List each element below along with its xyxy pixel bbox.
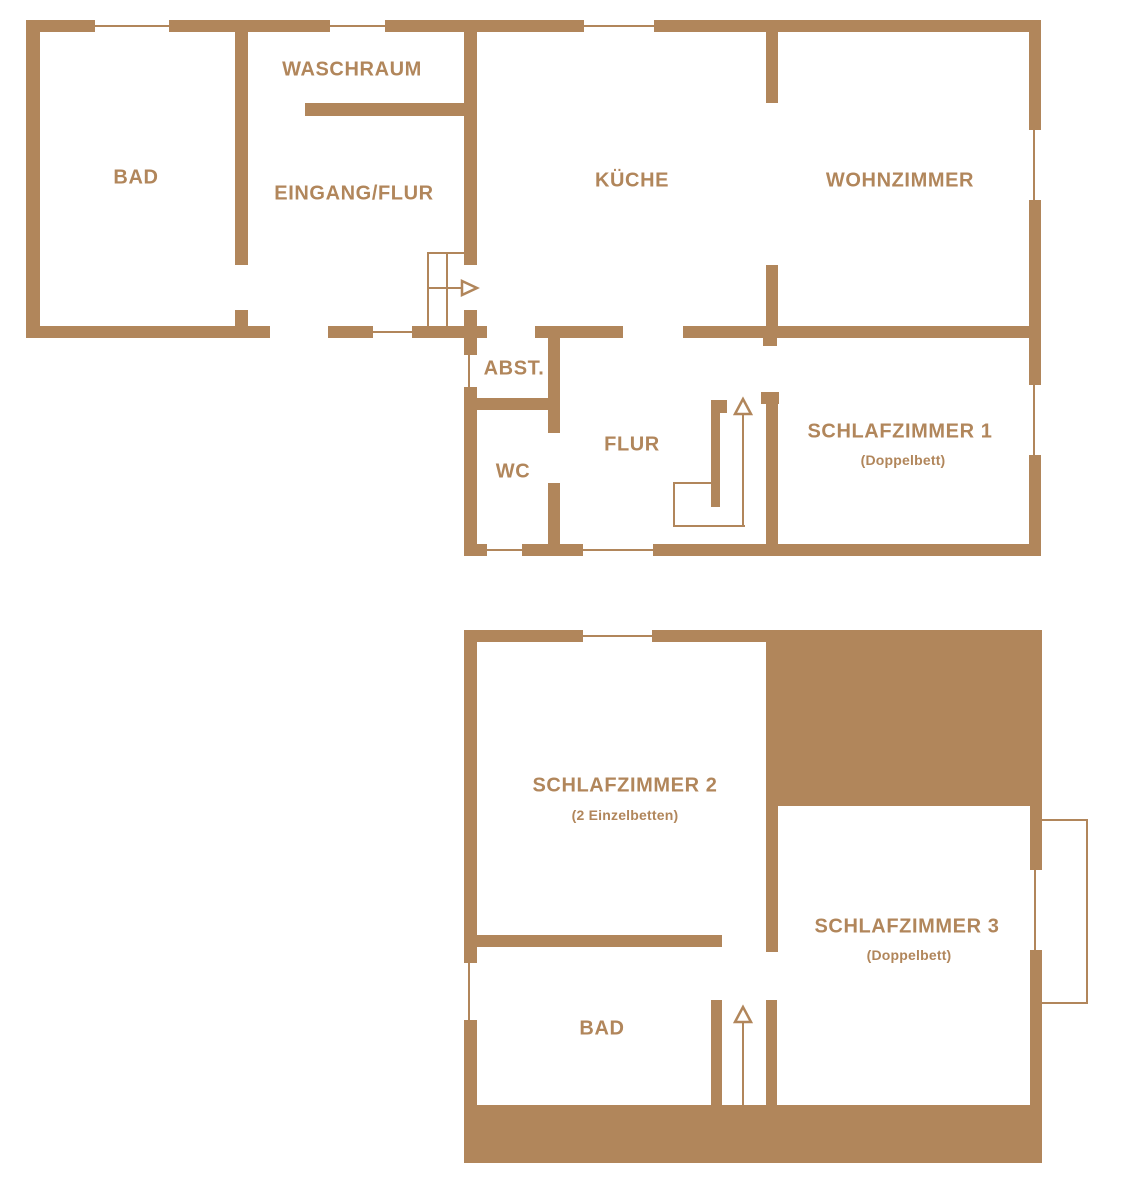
floorplan: BAD WASCHRAUM EINGANG/FLUR KÜCHE WOHNZIM…	[0, 0, 1131, 1196]
balcony-outline	[1042, 819, 1088, 821]
wall-segment	[766, 806, 778, 952]
wall-segment	[711, 1000, 722, 1105]
solid-filled-area	[464, 1105, 1042, 1163]
balcony-outline	[1042, 1002, 1088, 1004]
upper-floor-plan: SCHLAFZIMMER 2 (2 Einzelbetten) SCHLAFZI…	[0, 0, 1131, 1196]
stairs-direction-line	[742, 1022, 744, 1105]
room-label-bad-upper: BAD	[579, 1018, 624, 1041]
window-marker	[468, 963, 470, 1020]
wall-segment	[464, 1020, 477, 1105]
solid-filled-area	[766, 630, 1042, 806]
window-marker	[583, 635, 652, 637]
wall-segment	[1030, 806, 1042, 870]
wall-segment	[1030, 950, 1042, 1105]
room-label-schlafzimmer3: SCHLAFZIMMER 3	[814, 916, 999, 939]
balcony-outline	[1086, 819, 1088, 1004]
wall-segment	[464, 630, 477, 963]
wall-segment	[652, 630, 767, 642]
wall-segment	[464, 630, 583, 642]
window-marker	[1034, 870, 1036, 950]
room-label-schlafzimmer2: SCHLAFZIMMER 2	[532, 775, 717, 798]
room-sublabel-schlafzimmer3: (Doppelbett)	[867, 947, 952, 963]
wall-segment	[766, 1000, 777, 1105]
wall-segment	[464, 935, 722, 947]
room-sublabel-schlafzimmer2: (2 Einzelbetten)	[572, 807, 679, 823]
